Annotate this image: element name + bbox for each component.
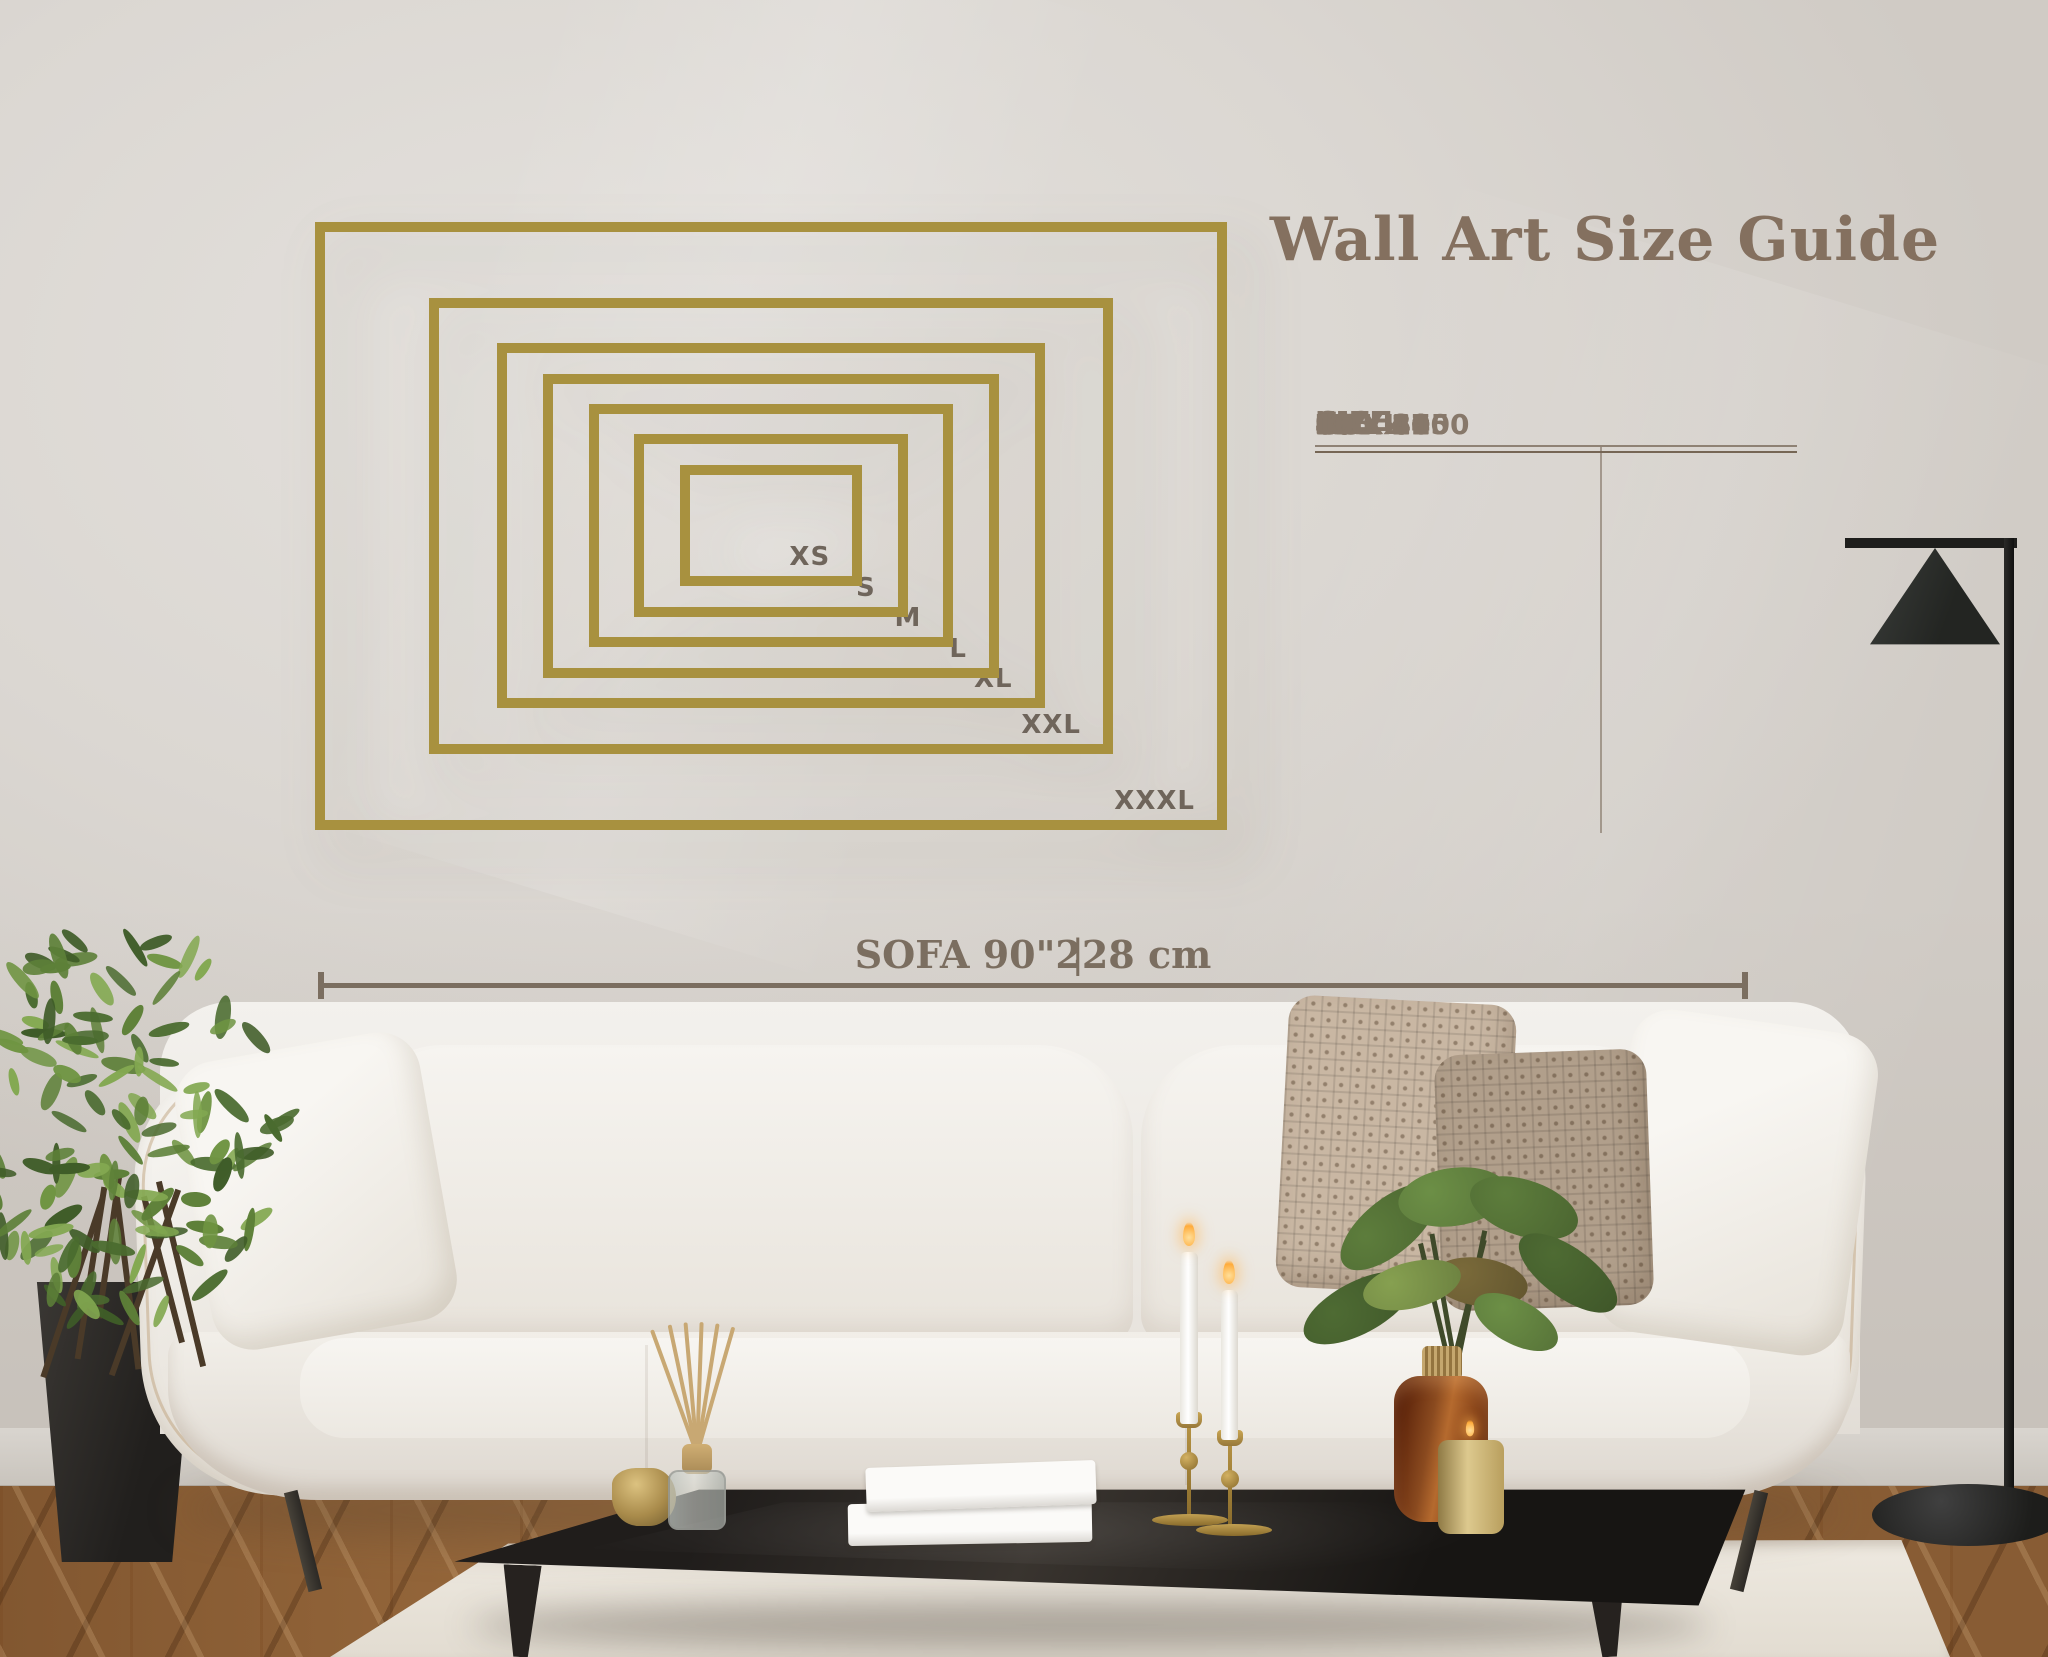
frame-label: XXXL: [1114, 786, 1195, 816]
measurement-end-cap: [1742, 972, 1748, 999]
white-pillow-left: [169, 1026, 464, 1357]
table-row: XXXL60 x 40150 x 100: [1315, 398, 1797, 453]
gold-candle: [1438, 1440, 1504, 1534]
taper-candle: [1180, 1252, 1198, 1424]
frame-label: XXL: [1021, 710, 1081, 740]
sofa-measurement-label: SOFA 90"|228 cm: [318, 932, 1748, 977]
frame-rect-XS: XS: [680, 465, 862, 587]
candle-flame: [1183, 1222, 1195, 1246]
sofa-seat-cushions: [300, 1338, 1750, 1438]
table-cell-cm: 150 x 100: [1315, 408, 1469, 441]
measurement-end-cap: [318, 972, 324, 999]
measurement-line: [318, 983, 1748, 988]
candlestick-ball: [1221, 1470, 1239, 1488]
floor-lamp-pole: [2004, 538, 2014, 1520]
brass-bowl: [612, 1468, 676, 1526]
living-room-scene: XXXLXXLXLLMSXS Wall Art Size Guide SIZE …: [0, 0, 2048, 1657]
candlestick-stem: [1187, 1424, 1191, 1520]
page-title: Wall Art Size Guide: [1260, 205, 1950, 275]
sofa-measurement: SOFA 90"|228 cm: [318, 932, 1748, 1002]
floor-lamp-arm: [1845, 538, 2017, 548]
candlestick-ball: [1180, 1452, 1198, 1470]
frame-label: XS: [789, 542, 830, 572]
sofa-back-cushion: [348, 1045, 1133, 1345]
floor-lamp-shade-rim: [1872, 636, 1998, 660]
candle-flame: [1223, 1260, 1235, 1284]
candlestick-base: [1196, 1524, 1272, 1536]
diffuser-jar: [668, 1470, 726, 1530]
vase-neck: [1422, 1346, 1462, 1380]
book: [865, 1460, 1096, 1512]
taper-candle: [1221, 1290, 1238, 1440]
table-shadow: [470, 1600, 1710, 1650]
candle-flame: [1466, 1420, 1474, 1437]
table-column-divider: [1600, 447, 1602, 833]
seat-seam: [645, 1345, 648, 1485]
